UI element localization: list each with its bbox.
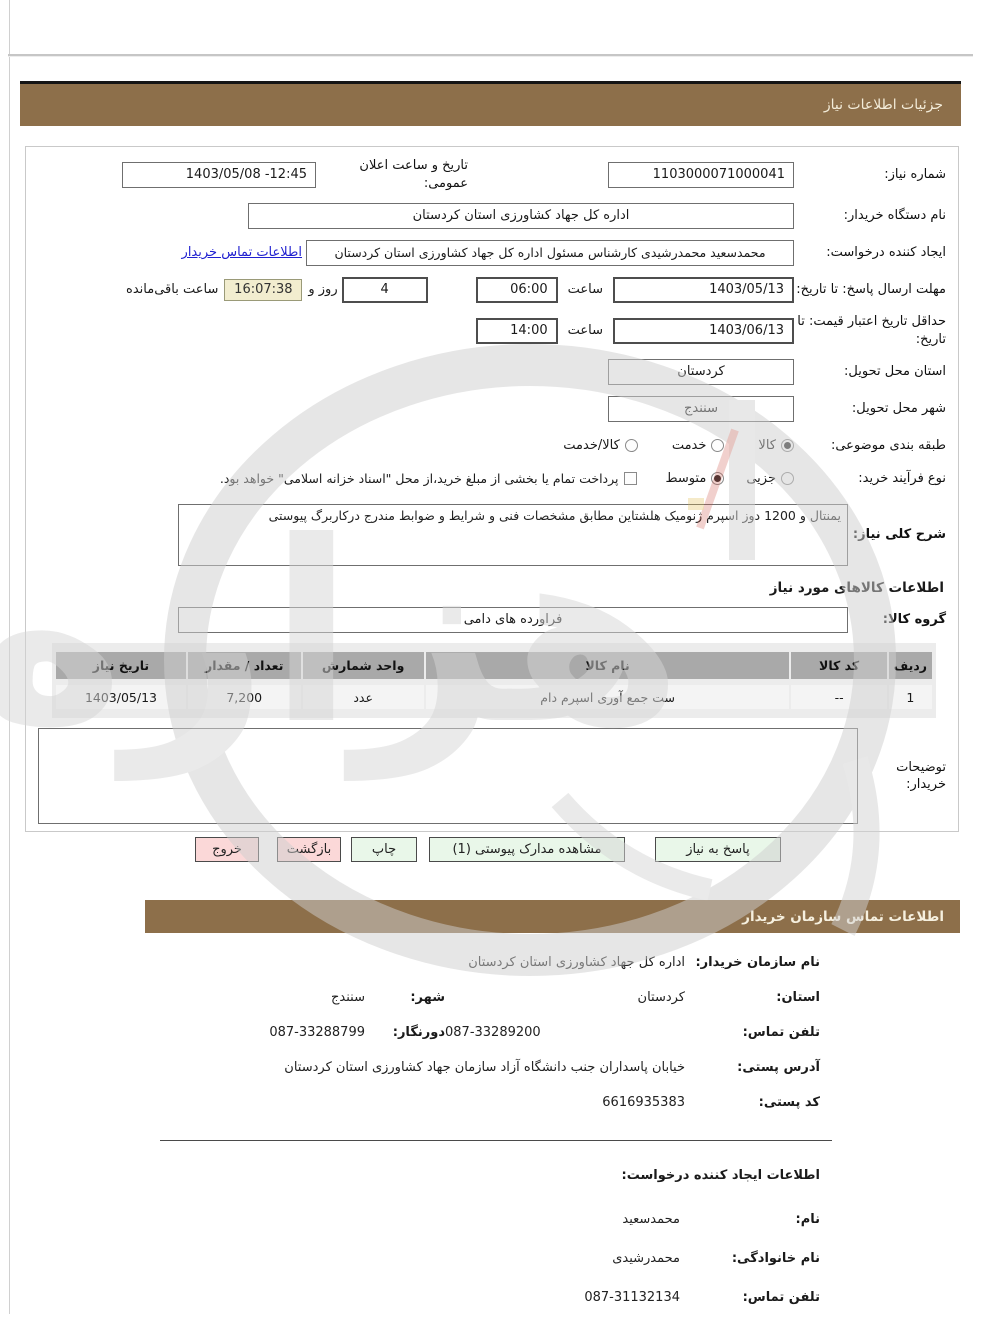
contact-postal-row: کد پستی: 6616935383 (145, 1092, 820, 1113)
request-creator-row: ایجاد کننده درخواست: محمدسعید محمدرشیدی … (38, 239, 946, 266)
response-deadline-time: 06:00 (510, 282, 547, 297)
delivery-city-label: شهر محل تحویل: (794, 400, 946, 418)
process-option-minor[interactable]: جزیی (746, 471, 794, 486)
radio-service-label: خدمت (672, 438, 707, 453)
goods-table: ردیف کد کالا نام کالا واحد شمارش تعداد /… (54, 646, 934, 715)
contact-fax-value: 087-33288799 (269, 1022, 365, 1043)
header-unit: واحد شمارش (303, 652, 424, 679)
need-number-value: 1103000071000041 (653, 167, 785, 182)
cell-item-code: -- (791, 685, 886, 709)
contact-postal-label: کد پستی: (685, 1092, 820, 1113)
creator-phone-row: تلفن تماس: 087-31132134 (160, 1287, 820, 1308)
contact-postal-value: 6616935383 (602, 1092, 685, 1113)
treasury-payment-option[interactable]: پرداخت تمام یا بخشی از مبلغ خرید،از محل … (220, 471, 638, 486)
radio-goods-service-icon[interactable] (625, 439, 638, 452)
deadline-hour-label: ساعت (568, 282, 603, 297)
purchase-process-label: نوع فرآیند خرید: (794, 470, 946, 488)
treasury-checkbox-icon[interactable] (624, 472, 637, 485)
creator-phone-label: تلفن تماس: (680, 1287, 820, 1308)
header-item-name: نام کالا (426, 652, 790, 679)
exit-button[interactable]: خروج (195, 837, 259, 862)
need-description-row: شرح کلی نیاز: یمنتال و 1200 دوز اسپرم ژن… (38, 504, 946, 566)
contact-address-label: آدرس پستی: (685, 1057, 820, 1078)
goods-group-field[interactable]: فراورده های دامی (178, 607, 848, 633)
delivery-city-field[interactable]: سنندج (608, 396, 794, 422)
radio-medium-label: متوسط (665, 471, 706, 486)
buyer-org-row: نام دستگاه خریدار: اداره کل جهاد کشاورزی… (38, 202, 946, 229)
response-deadline-row: مهلت ارسال پاسخ: تا تاریخ: 1403/05/13 سا… (38, 276, 946, 303)
creator-last-name-value: محمدرشیدی (612, 1248, 680, 1269)
subject-classification-label: طبقه بندی موضوعی: (794, 437, 946, 455)
cell-row-number: 1 (889, 685, 932, 709)
creator-last-name-label: نام خانوادگی: (680, 1248, 820, 1269)
announce-datetime-label: تاریخ و ساعت اعلان عمومی: (316, 157, 468, 192)
header-need-date: تاریخ نیاز (56, 652, 186, 679)
contact-section-bar: اطلاعات تماس سازمان خریدار (145, 900, 960, 933)
contact-city-value: سنندج (331, 987, 365, 1008)
subject-option-service[interactable]: خدمت (672, 438, 725, 453)
need-details-page: { "header": { "title": "جزئیات اطلاعات ن… (0, 0, 981, 1314)
request-creator-section: اطلاعات ایجاد کننده درخواست: نام: محمدسع… (160, 1168, 820, 1326)
delivery-city-row: شهر محل تحویل: سنندج (38, 395, 946, 422)
subject-option-goods-service[interactable]: کالا/خدمت (563, 438, 638, 453)
need-description-textarea[interactable]: یمنتال و 1200 دوز اسپرم ژنومیک هلشتاین م… (178, 504, 848, 566)
buyer-org-label: نام دستگاه خریدار: (794, 207, 946, 225)
need-details-panel: شماره نیاز: 1103000071000041 تاریخ و ساع… (25, 146, 959, 832)
price-validity-time-field[interactable]: 14:00 (476, 318, 558, 344)
header-quantity: تعداد / مقدار (188, 652, 301, 679)
cell-unit: عدد (303, 685, 424, 709)
cell-need-date: 1403/05/13 (56, 685, 186, 709)
contact-location-row: استان: کردستان شهر: سنندج (145, 987, 820, 1008)
contact-org-label: نام سازمان خریدار: (685, 952, 820, 973)
action-buttons-row: پاسخ به نیاز مشاهده مدارک پیوستی (1) چاپ… (25, 837, 959, 862)
top-divider-line (8, 54, 973, 57)
goods-table-header-row: ردیف کد کالا نام کالا واحد شمارش تعداد /… (56, 652, 932, 679)
radio-minor-label: جزیی (746, 471, 776, 486)
contact-fax-label: دورنگار: (365, 1022, 445, 1043)
contact-address-value: خیابان پاسداران جنب دانشگاه آزاد سازمان … (245, 1057, 685, 1078)
page-left-border (9, 0, 10, 1314)
page-title: جزئیات اطلاعات نیاز (824, 97, 943, 113)
request-creator-label: ایجاد کننده درخواست: (794, 244, 946, 262)
contact-city-label: شهر: (365, 987, 445, 1008)
creator-first-name-label: نام: (680, 1209, 820, 1230)
price-validity-time: 14:00 (510, 323, 547, 338)
subject-option-goods[interactable]: کالا (758, 438, 794, 453)
response-deadline-time-field[interactable]: 06:00 (476, 277, 558, 303)
need-number-field[interactable]: 1103000071000041 (608, 162, 794, 188)
purchase-process-row: نوع فرآیند خرید: جزیی متوسط پرداخت تمام … (38, 465, 946, 492)
contact-org-row: نام سازمان خریدار: اداره کل جهاد کشاورزی… (145, 952, 820, 973)
countdown-value: 16:07:38 (234, 282, 292, 297)
countdown-timer: 16:07:38 (224, 279, 302, 301)
creator-first-name-value: محمدسعید (622, 1209, 680, 1230)
cell-item-name: ست جمع آوری اسپرم دام (426, 685, 790, 709)
creator-phone-value: 087-31132134 (584, 1287, 680, 1308)
section-divider-line (160, 1140, 832, 1141)
contact-address-row: آدرس پستی: خیابان پاسداران جنب دانشگاه آ… (145, 1057, 820, 1078)
buyer-notes-row: توضیحات خریدار: (38, 728, 946, 824)
price-validity-row: حداقل تاریخ اعتبار قیمت: تا تاریخ: 1403/… (38, 313, 946, 348)
contact-province-label: استان: (685, 987, 820, 1008)
respond-to-need-button[interactable]: پاسخ به نیاز (655, 837, 781, 862)
remaining-days-field[interactable]: 4 (342, 277, 428, 303)
contact-phone-row: تلفن تماس: 087-33289200 دورنگار: 087-332… (145, 1022, 820, 1043)
goods-section-title: اطلاعات کالاهای مورد نیاز (38, 580, 944, 596)
need-description-label: شرح کلی نیاز: (848, 526, 946, 544)
radio-goods-label: کالا (758, 438, 776, 453)
cell-quantity: 7,200 (188, 685, 301, 709)
contact-province-value: کردستان (445, 987, 685, 1008)
view-attachments-button[interactable]: مشاهده مدارک پیوستی (1) (429, 837, 625, 862)
price-validity-date-field[interactable]: 1403/06/13 (613, 318, 794, 344)
delivery-province-row: استان محل تحویل: کردستان (38, 358, 946, 385)
response-deadline-date: 1403/05/13 (709, 282, 784, 297)
page-title-bar: جزئیات اطلاعات نیاز (20, 81, 961, 126)
need-number-label: شماره نیاز: (794, 166, 946, 184)
validity-hour-label: ساعت (568, 323, 603, 338)
treasury-checkbox-label: پرداخت تمام یا بخشی از مبلغ خرید،از محل … (220, 471, 619, 486)
creator-first-name-row: نام: محمدسعید (160, 1209, 820, 1230)
buyer-notes-textarea[interactable] (38, 728, 858, 824)
goods-group-value: فراورده های دامی (464, 612, 563, 627)
price-validity-label: حداقل تاریخ اعتبار قیمت: تا تاریخ: (794, 313, 946, 348)
announce-datetime-value: 1403/05/08 -12:45 (186, 167, 307, 182)
print-button[interactable]: چاپ (351, 837, 417, 862)
radio-goods-icon[interactable] (781, 439, 794, 452)
contact-phone-label: تلفن تماس: (685, 1022, 820, 1043)
buyer-notes-label: توضیحات خریدار: (858, 759, 946, 794)
delivery-city-value: سنندج (684, 401, 718, 416)
subject-classification-row: طبقه بندی موضوعی: کالا خدمت کالا/خدمت (38, 432, 946, 459)
goods-group-label: گروه کالا: (848, 611, 946, 629)
header-item-code: کد کالا (791, 652, 886, 679)
delivery-province-label: استان محل تحویل: (794, 363, 946, 381)
response-deadline-date-field[interactable]: 1403/05/13 (613, 277, 794, 303)
price-validity-date: 1403/06/13 (709, 323, 784, 338)
process-option-medium[interactable]: متوسط (665, 471, 724, 486)
request-creator-value: محمدسعید محمدرشیدی کارشناس مسئول اداره ک… (334, 245, 765, 260)
radio-medium-icon[interactable] (711, 472, 724, 485)
days-and-label: روز و (308, 282, 337, 297)
delivery-province-field[interactable]: کردستان (608, 359, 794, 385)
goods-group-row: گروه کالا: فراورده های دامی (38, 606, 946, 633)
goods-table-container: ردیف کد کالا نام کالا واحد شمارش تعداد /… (52, 643, 936, 718)
contact-section: نام سازمان خریدار: اداره کل جهاد کشاورزی… (145, 952, 960, 1127)
goods-table-row: 1 -- ست جمع آوری اسپرم دام عدد 7,200 140… (56, 685, 932, 709)
buyer-org-field[interactable]: اداره کل جهاد کشاورزی استان کردستان (248, 203, 794, 229)
announce-datetime-field[interactable]: 1403/05/08 -12:45 (122, 162, 316, 188)
radio-service-icon[interactable] (711, 439, 724, 452)
creator-last-name-row: نام خانوادگی: محمدرشیدی (160, 1248, 820, 1269)
hours-remaining-label: ساعت باقی‌مانده (126, 282, 218, 297)
delivery-province-value: کردستان (677, 364, 724, 379)
contact-section-title: اطلاعات تماس سازمان خریدار (742, 909, 944, 925)
need-number-row: شماره نیاز: 1103000071000041 تاریخ و ساع… (38, 157, 946, 192)
radio-minor-icon[interactable] (781, 472, 794, 485)
contact-org-value: اداره کل جهاد کشاورزی استان کردستان (468, 952, 685, 973)
contact-phone-value: 087-33289200 (445, 1022, 685, 1043)
remaining-days-value: 4 (380, 282, 388, 297)
back-button[interactable]: بازگشت (277, 837, 341, 862)
creator-section-title: اطلاعات ایجاد کننده درخواست: (160, 1168, 820, 1183)
buyer-org-value: اداره کل جهاد کشاورزی استان کردستان (413, 208, 630, 223)
radio-goods-service-label: کالا/خدمت (563, 438, 620, 453)
response-deadline-label: مهلت ارسال پاسخ: تا تاریخ: (794, 281, 946, 299)
header-row-number: ردیف (889, 652, 932, 679)
buyer-contact-link[interactable]: اطلاعات تماس خریدار (182, 245, 302, 260)
request-creator-field[interactable]: محمدسعید محمدرشیدی کارشناس مسئول اداره ک… (306, 240, 794, 266)
